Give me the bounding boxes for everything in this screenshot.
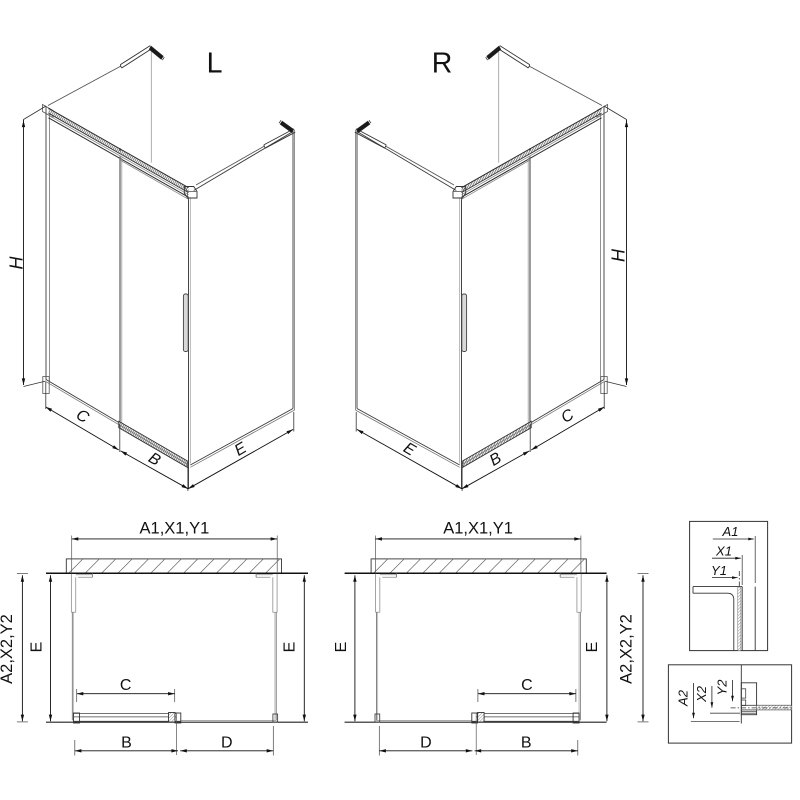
svg-text:A1: A1 bbox=[722, 524, 739, 539]
svg-text:A1,X1,Y1: A1,X1,Y1 bbox=[443, 519, 513, 537]
svg-text:E: E bbox=[281, 642, 298, 653]
svg-text:Y1: Y1 bbox=[711, 563, 727, 578]
svg-text:H: H bbox=[6, 256, 26, 270]
svg-text:E: E bbox=[333, 642, 350, 653]
svg-text:A2,X2,Y2: A2,X2,Y2 bbox=[0, 614, 16, 684]
svg-text:A2,X2,Y2: A2,X2,Y2 bbox=[618, 614, 636, 684]
svg-text:E: E bbox=[29, 642, 46, 653]
svg-text:L: L bbox=[207, 48, 223, 80]
svg-text:C: C bbox=[521, 677, 533, 694]
svg-text:Y2: Y2 bbox=[715, 679, 730, 696]
svg-text:D: D bbox=[420, 734, 432, 751]
svg-text:X2: X2 bbox=[694, 685, 709, 703]
svg-text:C: C bbox=[120, 677, 132, 694]
svg-text:B: B bbox=[121, 734, 132, 751]
svg-text:A1,X1,Y1: A1,X1,Y1 bbox=[140, 519, 210, 537]
svg-text:H: H bbox=[609, 248, 629, 262]
svg-text:B: B bbox=[521, 734, 532, 751]
svg-text:A2: A2 bbox=[676, 689, 691, 707]
svg-text:R: R bbox=[432, 48, 453, 80]
svg-text:X1: X1 bbox=[715, 544, 732, 559]
svg-text:D: D bbox=[221, 734, 233, 751]
svg-text:E: E bbox=[584, 642, 601, 653]
